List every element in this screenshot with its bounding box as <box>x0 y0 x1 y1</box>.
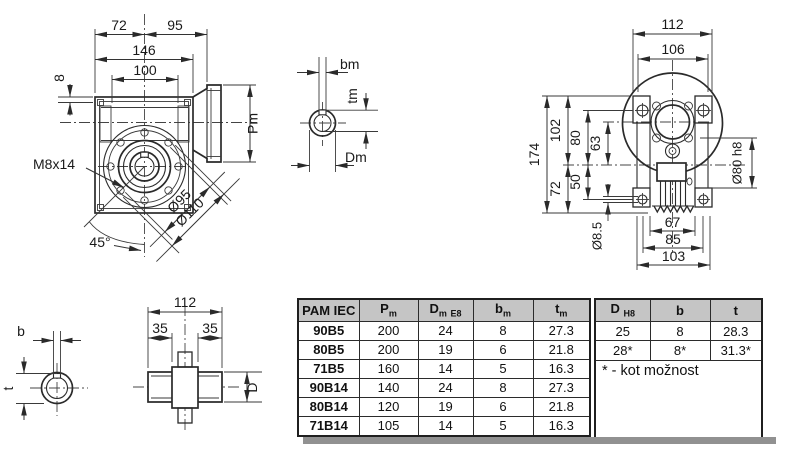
bm-label: bm <box>340 56 359 72</box>
cell-dm: 14 <box>418 359 473 378</box>
cell-b: 8* <box>650 341 710 361</box>
cell-pam: 80B14 <box>298 397 359 416</box>
pam-dimension-table: PAM IEC Pm Dm E8 bm tm 90B5 200 24 8 27.… <box>297 298 591 437</box>
cell-pm: 140 <box>359 378 418 397</box>
table-row: 71B5 160 14 5 16.3 <box>298 359 590 378</box>
output-shaft-section-drawing: b t <box>0 323 88 420</box>
table-note-row: * - kot možnost <box>595 361 762 438</box>
tm-label: tm <box>344 88 360 104</box>
spigot-dia-label: Ø80 h8 <box>730 142 745 185</box>
cell-tm: 21.8 <box>533 340 590 359</box>
t-label: t <box>0 386 16 390</box>
cell-bm: 5 <box>473 416 533 436</box>
table-row: 90B5 200 24 8 27.3 <box>298 322 590 341</box>
thread-label: M8x14 <box>33 156 75 172</box>
b-label: b <box>17 323 25 339</box>
table-note: * - kot možnost <box>595 361 762 438</box>
cell-pam: 90B5 <box>298 322 359 341</box>
table-row: 25 8 28.3 <box>595 322 762 341</box>
cell-tm: 21.8 <box>533 397 590 416</box>
dim-63-label: 63 <box>587 136 603 152</box>
cell-t: 31.3* <box>710 341 762 361</box>
cell-tm: 16.3 <box>533 359 590 378</box>
dm-label: Dm <box>345 149 367 165</box>
cell-bm: 6 <box>473 397 533 416</box>
cell-dm: 24 <box>418 322 473 341</box>
table-row: 28* 8* 31.3* <box>595 341 762 361</box>
cell-d: 25 <box>595 322 650 341</box>
table-row: 71B14 105 14 5 16.3 <box>298 416 590 436</box>
cell-pam: 71B5 <box>298 359 359 378</box>
cell-pm: 160 <box>359 359 418 378</box>
header-pam-iec: PAM IEC <box>298 299 359 322</box>
cell-d: 28* <box>595 341 650 361</box>
cell-pm: 105 <box>359 416 418 436</box>
cell-dm: 14 <box>418 416 473 436</box>
dim-67-label: 67 <box>665 214 681 230</box>
cell-b: 8 <box>650 322 710 341</box>
dim-174-label: 174 <box>526 143 542 167</box>
table-shadow <box>303 437 776 444</box>
front-view-drawing: 72 95 146 100 8 M8x14 45° Ø95 Ø110 Pm <box>33 14 261 262</box>
cell-dm: 19 <box>418 340 473 359</box>
dim-35-right-label: 35 <box>202 320 218 336</box>
dim-35-left-label: 35 <box>152 320 168 336</box>
header-pm: Pm <box>359 299 418 322</box>
table-header-row: D H8 b t <box>595 299 762 322</box>
header-dm: Dm E8 <box>418 299 473 322</box>
angle-label: 45° <box>89 234 110 250</box>
dim-72b-label: 72 <box>547 181 563 197</box>
output-dimension-table: D H8 b t 25 8 28.3 28* 8* 31.3* * - kot … <box>594 298 763 439</box>
cell-bm: 6 <box>473 340 533 359</box>
side-view-drawing: 112 106 174 102 72 80 50 63 Ø8.5 Ø80 h8 … <box>526 16 757 270</box>
cell-bm: 8 <box>473 378 533 397</box>
dim-106-label: 106 <box>661 41 685 57</box>
cell-tm: 27.3 <box>533 322 590 341</box>
cell-bm: 5 <box>473 359 533 378</box>
cell-pm: 200 <box>359 322 418 341</box>
table-row: 90B14 140 24 8 27.3 <box>298 378 590 397</box>
d-label: D <box>244 382 260 392</box>
output-shaft-drawing: 112 35 35 D <box>133 294 262 430</box>
header-t: t <box>710 299 762 322</box>
pm-label: Pm <box>245 113 261 134</box>
dim-146-label: 146 <box>132 42 156 58</box>
bolt-hole-dia-label: Ø8.5 <box>590 222 605 250</box>
dim-72-label: 72 <box>111 17 127 33</box>
header-d: D H8 <box>595 299 650 322</box>
dim-112-shaft-label: 112 <box>174 294 197 310</box>
cell-pam: 90B14 <box>298 378 359 397</box>
cell-dm: 24 <box>418 378 473 397</box>
cell-pm: 120 <box>359 397 418 416</box>
cell-dm: 19 <box>418 397 473 416</box>
dim-95-label: 95 <box>167 17 183 33</box>
dim-80-label: 80 <box>567 130 583 146</box>
cell-t: 28.3 <box>710 322 762 341</box>
dim-112-label: 112 <box>661 16 684 32</box>
table-header-row: PAM IEC Pm Dm E8 bm tm <box>298 299 590 322</box>
motor-shaft-section-drawing: bm tm Dm <box>291 56 378 172</box>
gearbox-dimension-sheet: 72 95 146 100 8 M8x14 45° Ø95 Ø110 Pm bm… <box>0 0 800 450</box>
header-b: b <box>650 299 710 322</box>
cell-bm: 8 <box>473 322 533 341</box>
table-row: 80B14 120 19 6 21.8 <box>298 397 590 416</box>
dim-85-label: 85 <box>665 231 681 247</box>
header-tm: tm <box>533 299 590 322</box>
table-row: 80B5 200 19 6 21.8 <box>298 340 590 359</box>
dim-50-label: 50 <box>567 174 583 190</box>
header-bm: bm <box>473 299 533 322</box>
cell-pm: 200 <box>359 340 418 359</box>
cell-pam: 71B14 <box>298 416 359 436</box>
cell-tm: 16.3 <box>533 416 590 436</box>
cell-tm: 27.3 <box>533 378 590 397</box>
dim-8-label: 8 <box>51 74 67 82</box>
dim-100-label: 100 <box>133 62 157 78</box>
dim-102-label: 102 <box>547 119 563 143</box>
dim-103-label: 103 <box>662 248 686 264</box>
cell-pam: 80B5 <box>298 340 359 359</box>
